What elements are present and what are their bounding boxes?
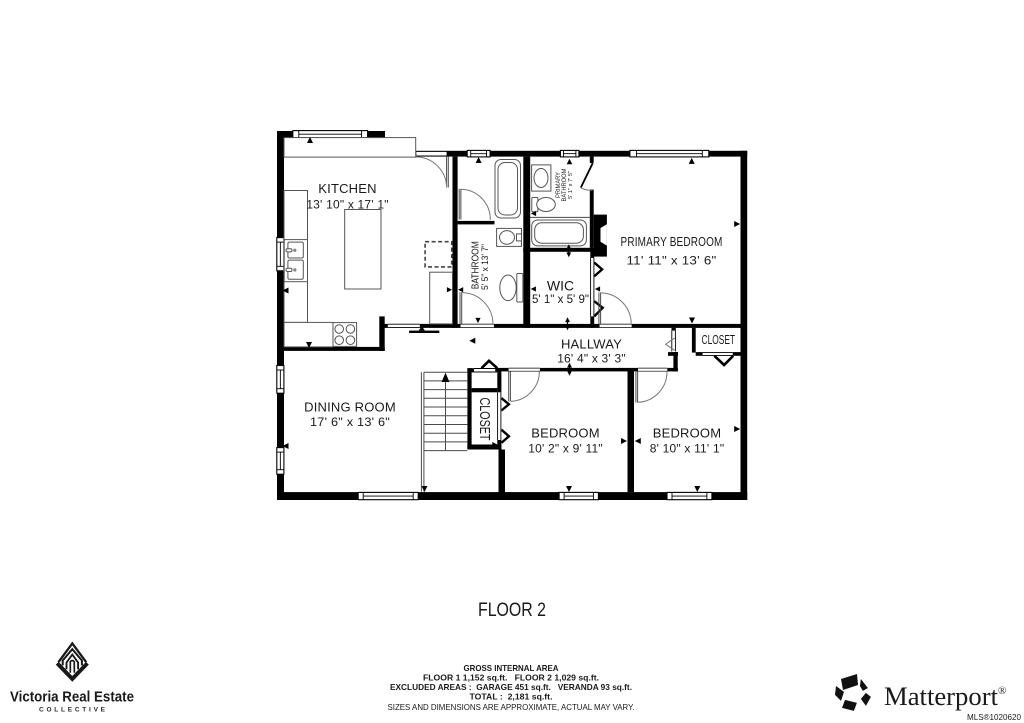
svg-text:FLOOR 1 1,152 sq.ft. FLOOR 2: FLOOR 1 1,152 sq.ft. FLOOR 2 1,029 sq.ft… <box>423 673 599 683</box>
svg-text:CLOSET: CLOSET <box>702 332 736 347</box>
svg-text:SIZES AND DIMENSIONS ARE APPRO: SIZES AND DIMENSIONS ARE APPROXIMATE, AC… <box>388 702 635 712</box>
svg-text:DINING ROOM: DINING ROOM <box>304 400 396 415</box>
svg-text:BATHROOM: BATHROOM <box>561 169 568 202</box>
svg-text:GROSS INTERNAL AREA: GROSS INTERNAL AREA <box>464 663 559 673</box>
svg-text:13' 10" x 17' 1": 13' 10" x 17' 1" <box>306 198 388 212</box>
svg-text:FLOOR 2: FLOOR 2 <box>478 600 546 621</box>
svg-text:WIC: WIC <box>547 278 574 294</box>
svg-text:8' 10" x 11' 1": 8' 10" x 11' 1" <box>650 442 725 456</box>
svg-text:BEDROOM: BEDROOM <box>653 426 722 441</box>
svg-text:MLS®1020620: MLS®1020620 <box>967 712 1021 722</box>
svg-text:KITCHEN: KITCHEN <box>318 181 376 196</box>
svg-text:Matterport®: Matterport® <box>884 682 1006 711</box>
svg-text:5' 1" x 7' 5": 5' 1" x 7' 5" <box>568 171 574 199</box>
svg-text:Victoria Real Estate: Victoria Real Estate <box>10 689 134 706</box>
svg-text:BEDROOM: BEDROOM <box>531 426 600 441</box>
svg-text:5' 1" x 5' 9": 5' 1" x 5' 9" <box>532 294 589 306</box>
svg-text:16' 4" x 3' 3": 16' 4" x 3' 3" <box>557 352 626 366</box>
svg-text:EXCLUDED AREAS : GARAGE 451 s: EXCLUDED AREAS : GARAGE 451 sq.ft. VERAN… <box>390 682 632 692</box>
svg-text:PRIMARY BEDROOM: PRIMARY BEDROOM <box>621 234 723 249</box>
svg-text:TOTAL : 2,181 sq.ft.: TOTAL : 2,181 sq.ft. <box>470 692 553 702</box>
svg-text:HALLWAY: HALLWAY <box>561 337 622 352</box>
svg-text:CLOSET: CLOSET <box>476 398 493 441</box>
svg-text:10' 2" x 9' 11": 10' 2" x 9' 11" <box>528 442 603 456</box>
svg-text:11' 11" x 13' 6": 11' 11" x 13' 6" <box>627 254 717 268</box>
svg-text:5' 5" x 13' 7": 5' 5" x 13' 7" <box>480 244 490 290</box>
svg-text:17' 6" x 13' 6": 17' 6" x 13' 6" <box>310 415 390 429</box>
